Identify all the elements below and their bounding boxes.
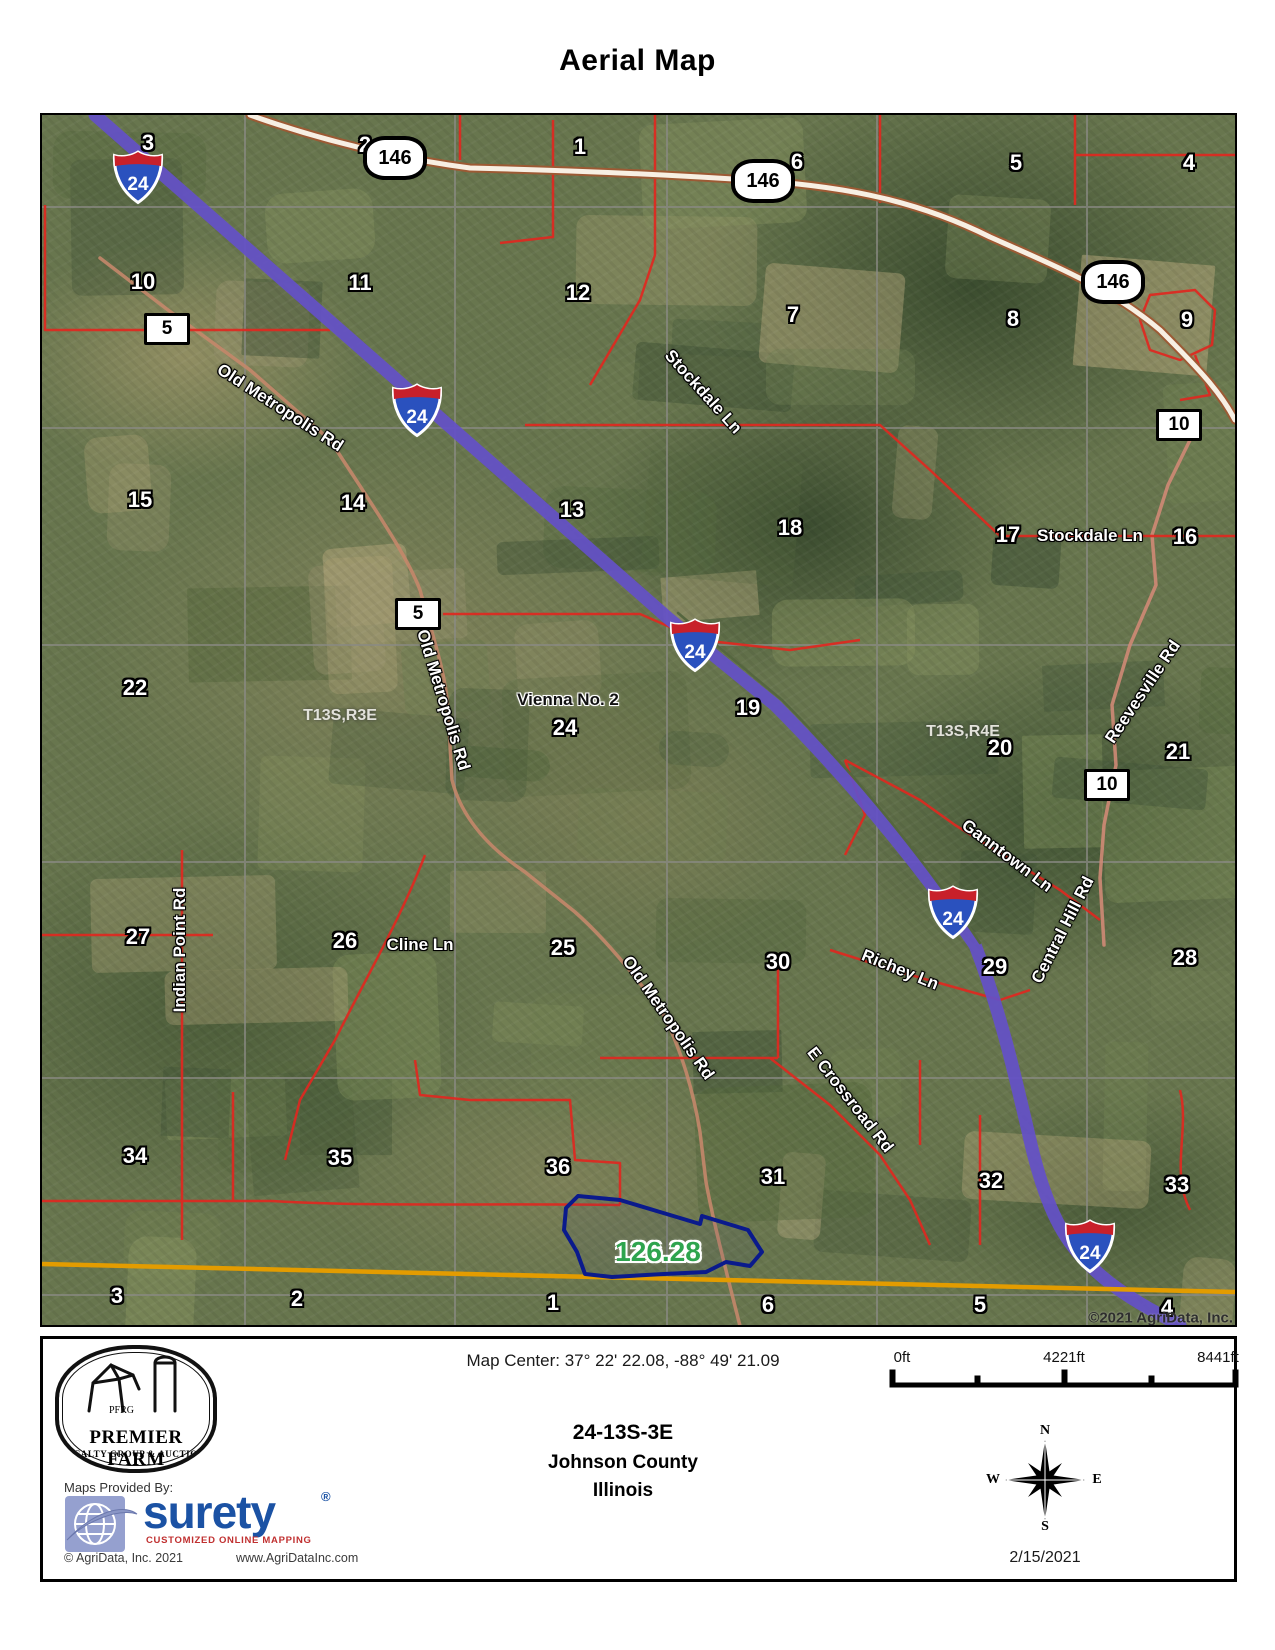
route-146-shield-icon: 146 bbox=[1081, 260, 1145, 304]
compass-rose: N W E S bbox=[995, 1423, 1095, 1533]
county-name: Johnson County bbox=[303, 1452, 943, 1474]
section-number: 4 bbox=[1183, 150, 1195, 176]
compass-north-label: N bbox=[1040, 1423, 1050, 1439]
place-label-vienna: Vienna No. 2 bbox=[517, 690, 619, 710]
section-grid-lines bbox=[42, 115, 1235, 1325]
section-number: 5 bbox=[974, 1292, 986, 1318]
township-range-section: 24-13S-3E bbox=[303, 1421, 943, 1445]
section-number: 13 bbox=[560, 497, 584, 523]
section-number: 18 bbox=[778, 515, 802, 541]
map-date: 2/15/2021 bbox=[995, 1549, 1095, 1567]
svg-text:24: 24 bbox=[1079, 1243, 1101, 1264]
section-number: 14 bbox=[341, 490, 365, 516]
section-number: 20 bbox=[988, 735, 1012, 761]
scale-start-label: 0ft bbox=[894, 1349, 911, 1366]
section-number: 35 bbox=[328, 1145, 352, 1171]
interstate-24-shield-icon: 24 bbox=[668, 617, 722, 673]
section-number: 24 bbox=[553, 715, 577, 741]
county-road-marker: 10 bbox=[1156, 409, 1202, 441]
local-roads bbox=[100, 258, 1190, 1325]
scale-bar: 0ft 4221ft 8441ft bbox=[888, 1349, 1240, 1391]
surety-globe-icon bbox=[65, 1496, 139, 1552]
map-footer: PFRG PREMIER FARM REALTY GROUP & AUCTION… bbox=[40, 1336, 1237, 1582]
compass-east-label: E bbox=[1092, 1472, 1101, 1488]
surety-tagline: CUSTOMIZED ONLINE MAPPING bbox=[146, 1535, 312, 1546]
section-number: 1 bbox=[547, 1290, 559, 1316]
section-number: 25 bbox=[551, 935, 575, 961]
section-number: 28 bbox=[1173, 945, 1197, 971]
section-number: 1 bbox=[574, 134, 586, 160]
agridata-copyright: © AgriData, Inc. 2021 bbox=[64, 1551, 183, 1565]
map-overlay-graphics bbox=[42, 115, 1235, 1325]
logo-tagline: REALTY GROUP & AUCTION bbox=[59, 1449, 213, 1459]
scale-mid-label: 4221ft bbox=[1043, 1349, 1085, 1366]
scale-end-label: 8441ft bbox=[1197, 1349, 1239, 1366]
section-number: 27 bbox=[126, 924, 150, 950]
map-center-coordinates: Map Center: 37° 22' 22.08, -88° 49' 21.0… bbox=[303, 1351, 943, 1371]
section-number: 22 bbox=[123, 675, 147, 701]
section-number: 36 bbox=[546, 1154, 570, 1180]
svg-text:24: 24 bbox=[942, 909, 964, 930]
svg-text:24: 24 bbox=[684, 642, 706, 663]
section-number: 26 bbox=[333, 928, 357, 954]
road-label: Cline Ln bbox=[386, 935, 453, 955]
red-boundary-lines bbox=[42, 115, 1235, 1245]
section-number: 8 bbox=[1007, 306, 1019, 332]
section-number: 16 bbox=[1173, 524, 1197, 550]
svg-text:24: 24 bbox=[406, 407, 428, 428]
section-number: 6 bbox=[762, 1292, 774, 1318]
route-146-shield-icon: 146 bbox=[363, 136, 427, 180]
compass-star-icon bbox=[1003, 1438, 1087, 1522]
aerial-map: T13S,R3E T13S,R4E Vienna No. 2 126.28 ©2… bbox=[40, 113, 1237, 1327]
section-number: 12 bbox=[566, 280, 590, 306]
section-number: 21 bbox=[1166, 739, 1190, 765]
section-number: 11 bbox=[348, 270, 371, 296]
surety-brand: surety bbox=[143, 1485, 275, 1539]
logo-initials: PFRG bbox=[109, 1405, 134, 1416]
route-146-shield-icon: 146 bbox=[731, 159, 795, 203]
section-number: 10 bbox=[131, 269, 155, 295]
section-number: 15 bbox=[128, 487, 152, 513]
section-number: 31 bbox=[761, 1164, 785, 1190]
aerial-map-page: Aerial Map bbox=[0, 0, 1275, 1650]
svg-text:24: 24 bbox=[127, 174, 149, 195]
page-title: Aerial Map bbox=[0, 44, 1275, 78]
interstate-24-shield-icon: 24 bbox=[390, 382, 444, 438]
section-number: 5 bbox=[1010, 150, 1022, 176]
scale-bar-graphic bbox=[888, 1367, 1240, 1389]
interstate-24-shield-icon: 24 bbox=[1063, 1218, 1117, 1274]
section-number: 19 bbox=[736, 695, 760, 721]
interstate-24-highway bbox=[95, 115, 1180, 1325]
compass-west-label: W bbox=[986, 1472, 1000, 1488]
road-label: Indian Point Rd bbox=[170, 888, 190, 1013]
section-number: 32 bbox=[979, 1168, 1003, 1194]
county-road-marker: 10 bbox=[1084, 769, 1130, 801]
barn-silo-icon bbox=[59, 1349, 213, 1425]
agridata-website: www.AgriDataInc.com bbox=[236, 1551, 358, 1565]
county-road-marker: 5 bbox=[395, 598, 441, 630]
township-label-t13s-r3e: T13S,R3E bbox=[303, 707, 377, 725]
section-number: 30 bbox=[766, 949, 790, 975]
section-number: 2 bbox=[291, 1286, 303, 1312]
map-copyright: ©2021 AgriData, Inc. bbox=[1088, 1310, 1233, 1327]
section-number: 33 bbox=[1165, 1172, 1189, 1198]
state-name: Illinois bbox=[303, 1480, 943, 1502]
section-number: 9 bbox=[1181, 307, 1193, 333]
section-number: 3 bbox=[111, 1283, 123, 1309]
section-number: 29 bbox=[983, 954, 1007, 980]
county-road-marker: 5 bbox=[144, 313, 190, 345]
section-number: 34 bbox=[123, 1143, 147, 1169]
interstate-24-shield-icon: 24 bbox=[926, 884, 980, 940]
interstate-24-shield-icon: 24 bbox=[111, 149, 165, 205]
parcel-acres-label: 126.28 bbox=[615, 1236, 701, 1268]
section-number: 7 bbox=[787, 302, 799, 328]
section-number: 17 bbox=[996, 522, 1020, 548]
premier-farm-logo: PFRG PREMIER FARM REALTY GROUP & AUCTION bbox=[55, 1345, 217, 1473]
road-label: Stockdale Ln bbox=[1037, 526, 1143, 546]
